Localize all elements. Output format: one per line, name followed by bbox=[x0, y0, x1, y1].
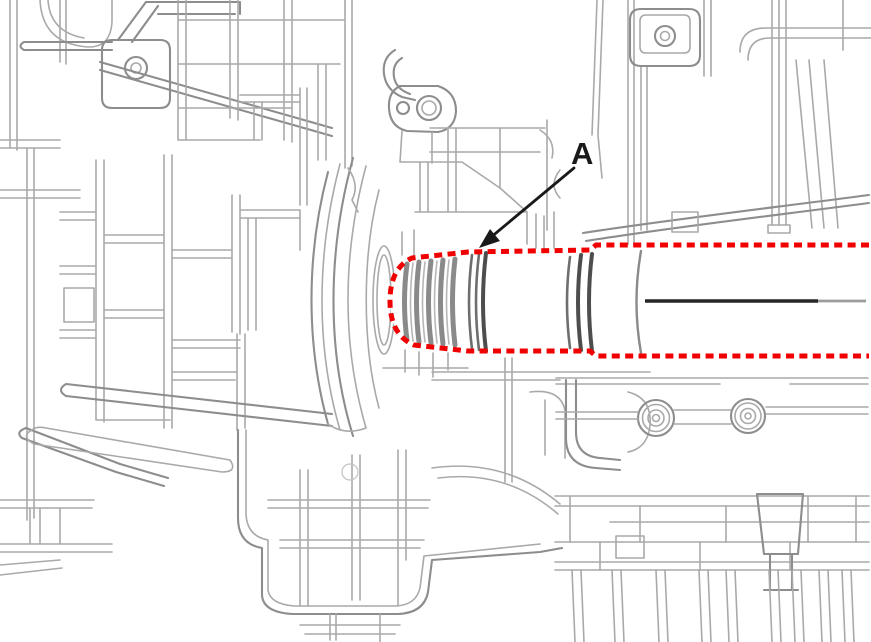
bell-housing-rings bbox=[312, 158, 396, 436]
housing-linework-bottomright bbox=[555, 378, 869, 642]
leader-arrow-line bbox=[490, 168, 574, 238]
driveshaft bbox=[390, 245, 869, 356]
callout-label: A bbox=[571, 136, 593, 171]
diagram-canvas: A bbox=[0, 0, 871, 642]
housing-linework-right bbox=[583, 0, 871, 246]
technical-diagram: A bbox=[0, 0, 871, 642]
housing-linework-topcenter bbox=[384, 50, 560, 248]
